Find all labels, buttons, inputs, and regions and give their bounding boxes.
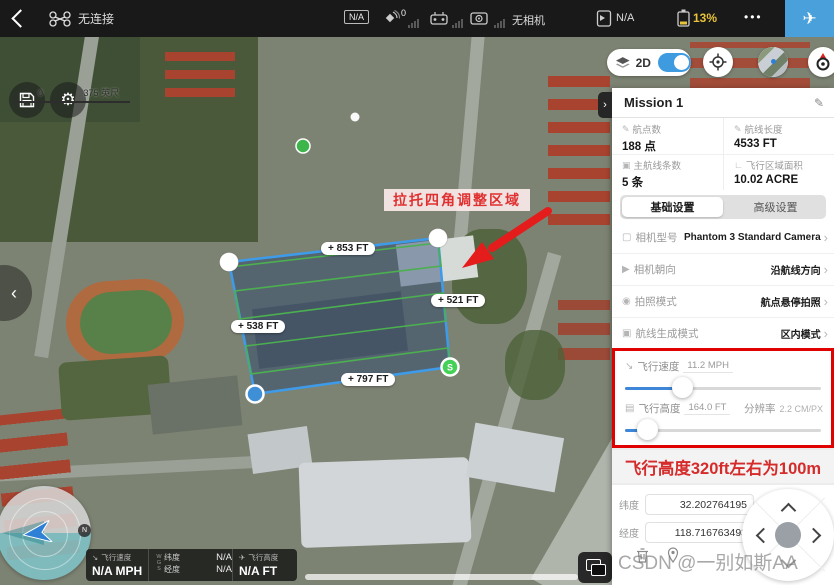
- speed-slider-thumb[interactable]: [672, 377, 693, 398]
- compass-north-badge: N: [78, 524, 91, 537]
- mission-stats: ✎航点数 188 点 ✎航线长度 4533 FT ▣主航线条数 5 条 ∟飞行区…: [612, 118, 834, 190]
- altitude-note: 飞行高度320ft左右为100m: [612, 450, 834, 483]
- map-scale: 0 375 英尺: [13, 86, 130, 103]
- drone-icon: [49, 11, 71, 27]
- highlighted-sliders-box: ↘ 飞行速度 11.2 MPH ▤ 飞行高度 164.0 FT 分辨率 2.2 …: [612, 348, 834, 448]
- stat-route-length: ✎航线长度 4533 FT: [724, 118, 834, 154]
- speed-icon: ↘: [92, 553, 98, 562]
- minimap-button[interactable]: [758, 47, 788, 77]
- compass-widget[interactable]: [0, 486, 91, 580]
- minimap-thumbnail: [758, 47, 788, 77]
- locate-button[interactable]: [703, 47, 733, 77]
- tab-advanced-settings[interactable]: 高级设置: [725, 195, 826, 219]
- gps-mode-badge: N/A: [344, 10, 369, 24]
- plane-icon: ✈: [802, 9, 816, 29]
- route-mode-icon: ▣: [622, 328, 631, 339]
- edit-mission-icon[interactable]: ✎: [814, 96, 824, 110]
- altitude-slider-label: ▤ 飞行高度 164.0 FT: [625, 401, 730, 416]
- annotation-label: 拉托四角调整区域: [384, 189, 530, 211]
- edge-length-left: + 538 FT: [231, 320, 285, 333]
- resolution-label: 分辨率 2.2 CM/PX: [744, 401, 823, 416]
- view-mode-pill[interactable]: 2D: [607, 49, 691, 76]
- scale-end: 375 英尺: [84, 88, 120, 98]
- speed-icon: ↘: [625, 361, 633, 372]
- edge-length-right: + 521 FT: [431, 294, 485, 307]
- satellite-count: 0: [401, 8, 406, 18]
- locate-icon: [709, 53, 727, 71]
- camera-signal-bars: [494, 18, 505, 28]
- chevron-right-icon: ›: [824, 326, 828, 341]
- telemetry-bar: ↘飞行速度 N/A MPH WGS 纬度N/A 经度N/A ✈飞行高度 N/A …: [86, 549, 297, 581]
- top-status-bar: 无连接 N/A 0 无相机 N/A: [0, 0, 834, 37]
- altitude-icon: ▤: [625, 403, 634, 414]
- latitude-row: 纬度: [612, 494, 754, 515]
- satellite-icon: [382, 10, 400, 26]
- view-2d-toggle[interactable]: [658, 53, 691, 72]
- takeoff-button[interactable]: ✈: [785, 0, 834, 37]
- satellite-signal-bars: [408, 18, 419, 28]
- aircraft-heading-arrow: [22, 520, 53, 546]
- telemetry-speed: ↘飞行速度 N/A MPH: [86, 549, 148, 581]
- telemetry-position: WGS 纬度N/A 经度N/A: [148, 549, 232, 581]
- longitude-row: 经度: [612, 522, 754, 543]
- telemetry-altitude: ✈飞行高度 N/A FT: [232, 549, 296, 581]
- watermark: CSDN @一别如斯AA: [618, 548, 834, 575]
- map-mode-button[interactable]: [578, 552, 612, 583]
- camera-orientation-icon: ▶: [622, 264, 630, 275]
- tab-basic-settings[interactable]: 基础设置: [622, 197, 723, 217]
- edge-length-top: + 853 FT: [321, 242, 375, 255]
- longitude-input[interactable]: [645, 522, 754, 543]
- nudge-left-button[interactable]: [756, 528, 772, 544]
- latitude-input[interactable]: [645, 494, 754, 515]
- nudge-center-button[interactable]: [775, 522, 801, 548]
- compass-heading-icon: [813, 52, 833, 72]
- altitude-slider[interactable]: [625, 429, 821, 432]
- setting-route-mode[interactable]: ▣ 航线生成模式 区内模式 ›: [612, 318, 834, 350]
- layers-icon: [615, 56, 631, 70]
- settings-tabs: 基础设置 高级设置: [612, 190, 834, 222]
- chevron-left-icon: ‹: [11, 283, 17, 304]
- map-feature: [165, 52, 235, 97]
- altitude-plane-icon: ✈: [239, 553, 245, 562]
- more-menu-button[interactable]: •••: [744, 10, 763, 24]
- flight-status-value: N/A: [616, 12, 634, 24]
- battery-percent: 13%: [693, 11, 717, 25]
- settings-list: ▢ 相机型号 Phantom 3 Standard Camera › ▶ 相机朝…: [612, 222, 834, 350]
- chevron-right-icon: ›: [824, 294, 828, 309]
- setting-camera-orientation[interactable]: ▶ 相机朝向 沿航线方向 ›: [612, 254, 834, 286]
- camera-model-icon: ▢: [622, 232, 631, 243]
- edge-length-bottom: + 797 FT: [341, 373, 395, 386]
- rc-signal-bars: [452, 18, 463, 28]
- main-lines-icon: ▣: [622, 160, 631, 171]
- map-feature: [148, 375, 243, 434]
- home-indicator[interactable]: [305, 574, 578, 580]
- back-icon[interactable]: [11, 9, 29, 27]
- photo-mode-icon: ◉: [622, 296, 631, 307]
- setting-photo-mode[interactable]: ◉ 拍照模式 航点悬停拍照 ›: [612, 286, 834, 318]
- setting-camera-model[interactable]: ▢ 相机型号 Phantom 3 Standard Camera ›: [612, 222, 834, 254]
- area-icon: ∟: [734, 160, 743, 170]
- chevron-right-icon: ›: [824, 230, 828, 245]
- waypoint-icon: ✎: [622, 124, 630, 135]
- camera-status: 无相机: [512, 12, 545, 28]
- altitude-slider-thumb[interactable]: [637, 419, 658, 440]
- chevron-right-icon: ›: [824, 262, 828, 277]
- nudge-up-button[interactable]: [781, 503, 797, 519]
- speed-slider-label: ↘ 飞行速度 11.2 MPH: [625, 359, 733, 374]
- connection-status: 无连接: [78, 10, 114, 27]
- stat-main-lines: ▣主航线条数 5 条: [612, 154, 722, 190]
- stat-waypoints: ✎航点数 188 点: [612, 118, 722, 154]
- stat-area: ∟飞行区域面积 10.02 ACRE: [724, 154, 834, 190]
- view-toggle-label: 2D: [636, 56, 651, 70]
- flight-status-icon: [596, 9, 612, 27]
- mission-header: Mission 1 ✎: [612, 88, 834, 118]
- speed-slider[interactable]: [625, 387, 821, 390]
- map-feature: [299, 457, 472, 548]
- map-feature: [558, 300, 610, 360]
- map-feature: [466, 423, 564, 493]
- mission-title: Mission 1: [624, 95, 683, 110]
- nudge-right-button[interactable]: [806, 528, 822, 544]
- wgs-label: WGS: [155, 554, 162, 581]
- map-feature: [505, 330, 565, 400]
- scale-start: 0: [38, 88, 43, 98]
- drone-mission-app: S + 853 FT + 521 FT + 538 FT + 797 FT 拉托…: [0, 0, 834, 585]
- camera-signal-icon: [470, 11, 488, 25]
- heading-mode-button[interactable]: [808, 47, 834, 77]
- battery-icon: [677, 9, 690, 27]
- route-length-icon: ✎: [734, 124, 742, 135]
- panel-collapse-tab[interactable]: ›: [598, 92, 612, 118]
- remote-controller-icon: [430, 11, 448, 25]
